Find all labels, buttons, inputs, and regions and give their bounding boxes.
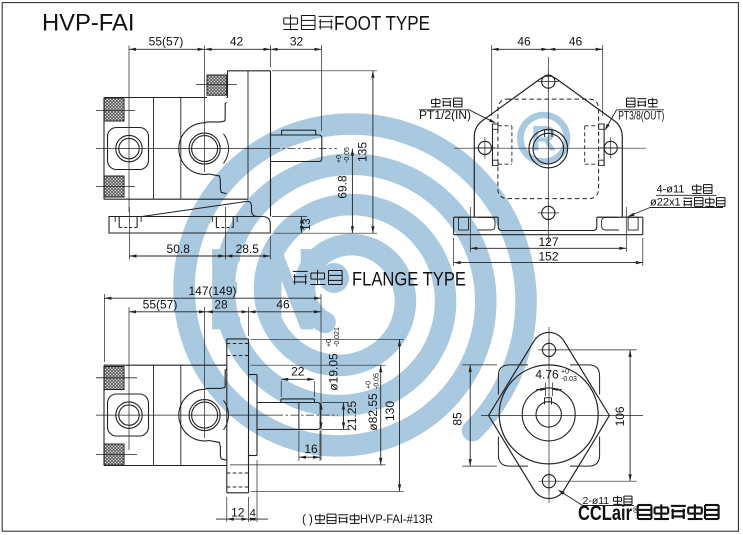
svg-text:46: 46 [517,35,531,49]
svg-text:135: 135 [356,142,370,162]
svg-text:R: R [531,120,556,159]
svg-text:50.8: 50.8 [167,242,191,256]
svg-text:130: 130 [383,401,397,421]
svg-text:55(57): 55(57) [149,35,184,49]
svg-text:32: 32 [290,35,304,49]
svg-text:HVP-FAI-#13R: HVP-FAI-#13R [360,514,433,526]
svg-text:+0: +0 [326,339,333,347]
svg-text:ø19.05: ø19.05 [327,353,341,391]
svg-text:46: 46 [276,297,290,311]
svg-text:106: 106 [613,406,627,426]
svg-text:HVP-FAI: HVP-FAI [42,10,135,37]
svg-text:CCLair: CCLair [578,502,632,525]
svg-text:4: 4 [250,507,256,519]
svg-text:PT3/8(OUT): PT3/8(OUT) [618,109,664,123]
svg-text:+0: +0 [366,381,373,389]
svg-text:-0.05: -0.05 [374,373,381,389]
svg-text:+0: +0 [561,369,569,376]
svg-text:28: 28 [214,297,228,311]
svg-text:FOOT TYPE: FOOT TYPE [334,13,430,35]
svg-text:( ): ( ) [302,514,313,526]
svg-text:+0: +0 [336,155,343,163]
svg-text:152: 152 [538,249,558,263]
svg-text:28.5: 28.5 [236,242,260,256]
svg-text:69.8: 69.8 [336,175,350,199]
svg-text:4-ø11: 4-ø11 [657,184,685,196]
svg-text:ø82.55: ø82.55 [366,393,380,431]
svg-text:42: 42 [230,35,244,49]
svg-text:ø22x1: ø22x1 [650,196,681,208]
svg-text:4.76: 4.76 [535,368,559,382]
svg-text:16: 16 [304,442,318,456]
svg-text:127: 127 [538,235,558,249]
svg-text:22: 22 [291,364,305,378]
svg-text:85: 85 [450,412,464,426]
svg-text:13: 13 [301,218,313,230]
svg-text:12: 12 [231,505,245,519]
svg-text:-0.05: -0.05 [344,147,351,163]
svg-text:46: 46 [569,35,583,49]
svg-text:-0.03: -0.03 [561,376,577,383]
svg-text:-0.021: -0.021 [334,327,341,347]
svg-text:FLANGE TYPE: FLANGE TYPE [352,269,466,291]
svg-text:55(57): 55(57) [143,297,178,311]
svg-text:21.25: 21.25 [345,401,359,431]
svg-text:147(149): 147(149) [188,284,236,298]
